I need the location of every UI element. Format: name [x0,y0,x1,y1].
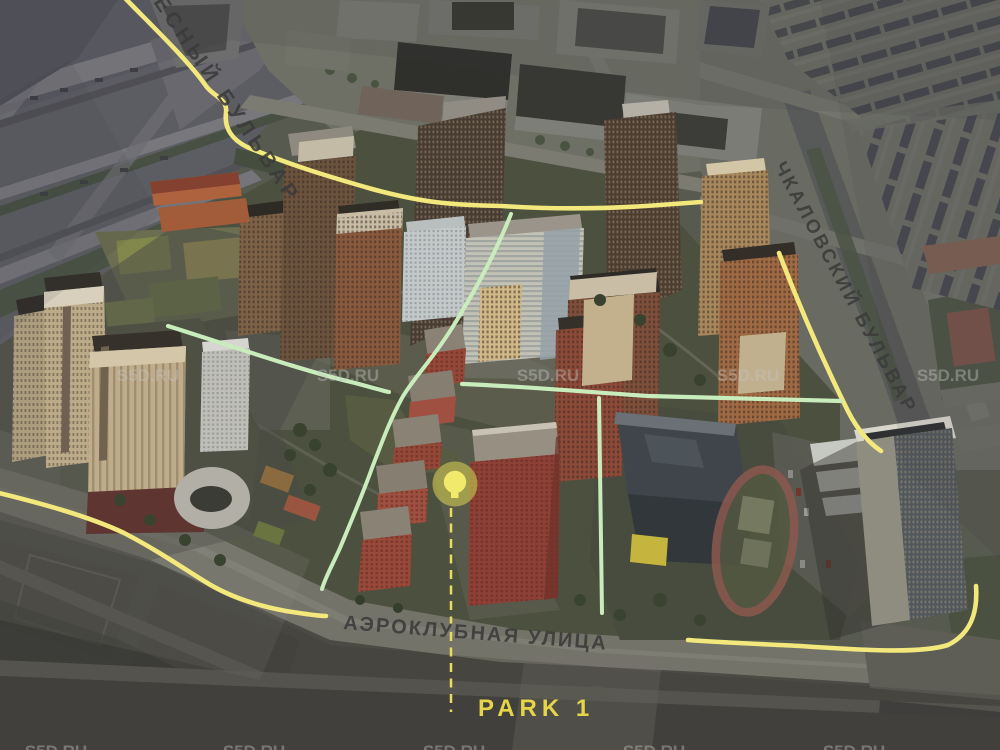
svg-text:S5D.RU: S5D.RU [517,366,579,385]
svg-text:S5D.RU: S5D.RU [423,742,485,750]
svg-text:S5D.RU: S5D.RU [717,366,779,385]
svg-text:S5D.RU: S5D.RU [317,366,379,385]
svg-text:S5D.RU: S5D.RU [25,742,87,750]
svg-text:S5D.RU: S5D.RU [117,366,179,385]
svg-text:PARK 1: PARK 1 [478,695,594,722]
svg-text:S5D.RU: S5D.RU [823,742,885,750]
svg-text:S5D.RU: S5D.RU [223,742,285,750]
svg-text:S5D.RU: S5D.RU [623,742,685,750]
svg-text:S5D.RU: S5D.RU [917,366,979,385]
